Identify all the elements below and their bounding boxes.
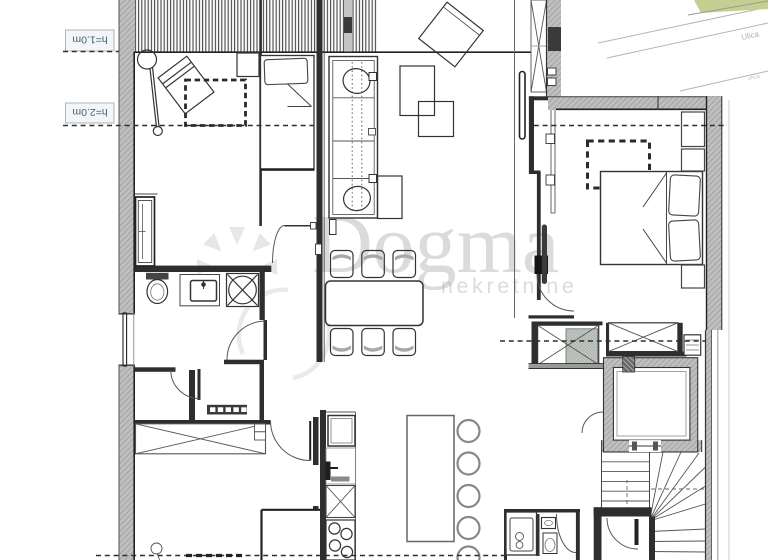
svg-text:h=1.0m: h=1.0m bbox=[72, 34, 108, 46]
svg-text:nekretnine: nekretnine bbox=[441, 274, 577, 298]
svg-text:h=2.0m: h=2.0m bbox=[72, 106, 108, 118]
